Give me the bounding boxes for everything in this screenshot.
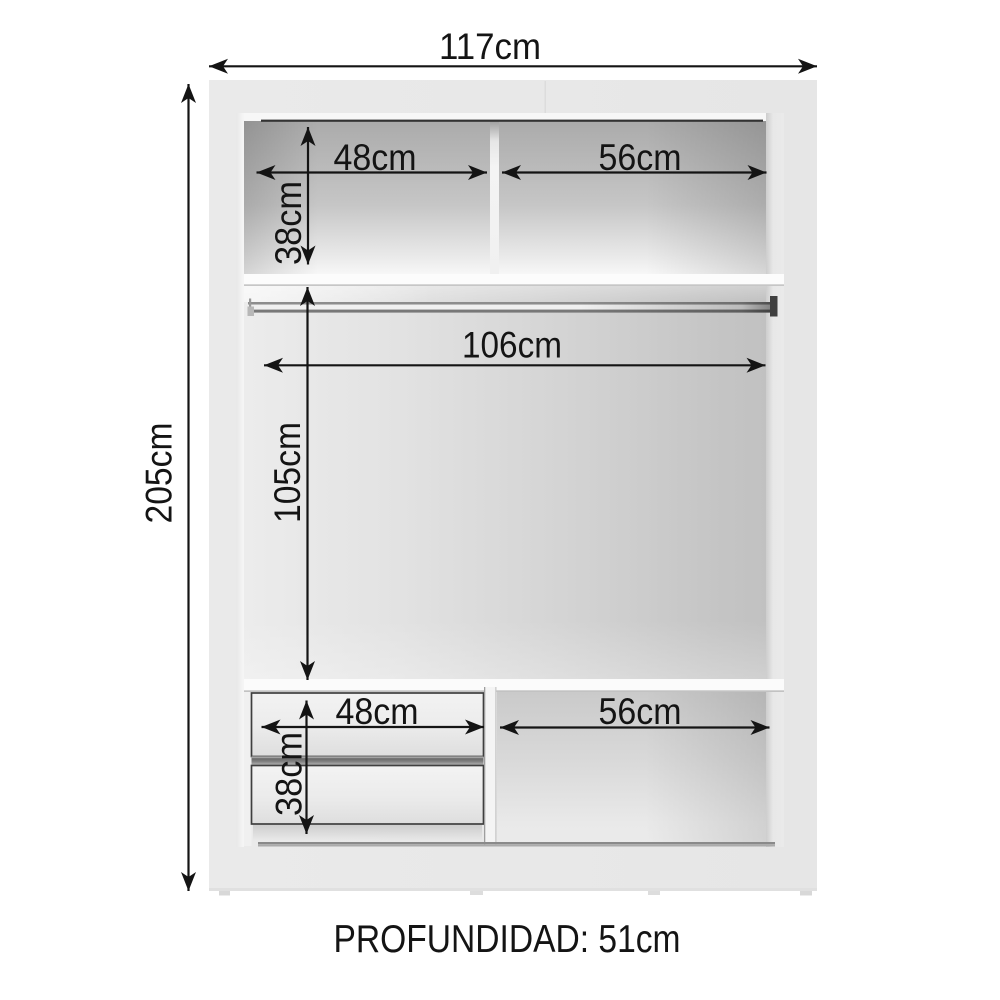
- svg-text:56cm: 56cm: [599, 137, 682, 178]
- svg-text:117cm: 117cm: [439, 26, 541, 67]
- svg-text:105cm: 105cm: [267, 422, 308, 523]
- svg-text:205cm: 205cm: [139, 423, 180, 524]
- svg-text:48cm: 48cm: [334, 137, 417, 178]
- svg-text:106cm: 106cm: [462, 325, 562, 366]
- svg-text:38cm: 38cm: [268, 181, 309, 265]
- svg-text:38cm: 38cm: [269, 732, 310, 816]
- svg-text:48cm: 48cm: [336, 691, 419, 732]
- svg-text:PROFUNDIDAD: 51cm: PROFUNDIDAD: 51cm: [334, 918, 681, 961]
- svg-text:56cm: 56cm: [599, 691, 682, 732]
